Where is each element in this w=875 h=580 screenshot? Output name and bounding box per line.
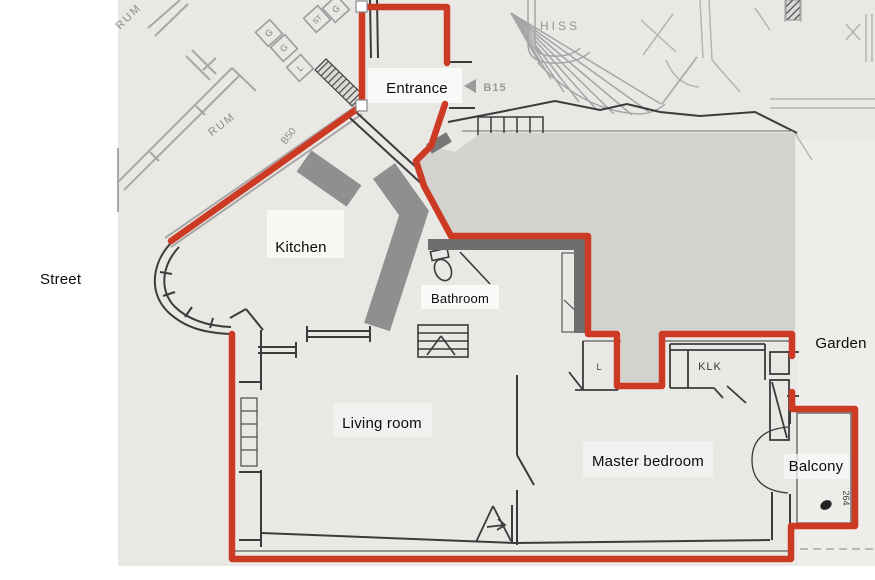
label-bathroom[interactable]: Bathroom [431, 291, 489, 306]
plan-text-klk: KLK [698, 361, 722, 373]
label-living-room[interactable]: Living room [342, 415, 422, 432]
plan-text-b15: B15 [483, 82, 506, 94]
annotated-floor-plan: G ST G G L RUM RUM B50 HISS [0, 0, 875, 580]
hatched-pillar [786, 0, 800, 20]
label-street[interactable]: Street [40, 271, 81, 288]
label-kitchen[interactable]: Kitchen [275, 239, 326, 256]
plan-text-balcony-number: 264 [841, 490, 851, 505]
selection-handle-bottom[interactable] [356, 100, 367, 111]
selection-handle-top[interactable] [356, 1, 367, 12]
plan-text-closet-l: L [596, 362, 601, 372]
label-garden[interactable]: Garden [815, 335, 866, 352]
label-balcony[interactable]: Balcony [789, 458, 844, 475]
label-entrance[interactable]: Entrance [386, 80, 448, 97]
label-master-bedroom[interactable]: Master bedroom [592, 453, 704, 470]
garden-paper-area [797, 140, 875, 566]
plan-text-hiss: HISS [540, 19, 580, 33]
